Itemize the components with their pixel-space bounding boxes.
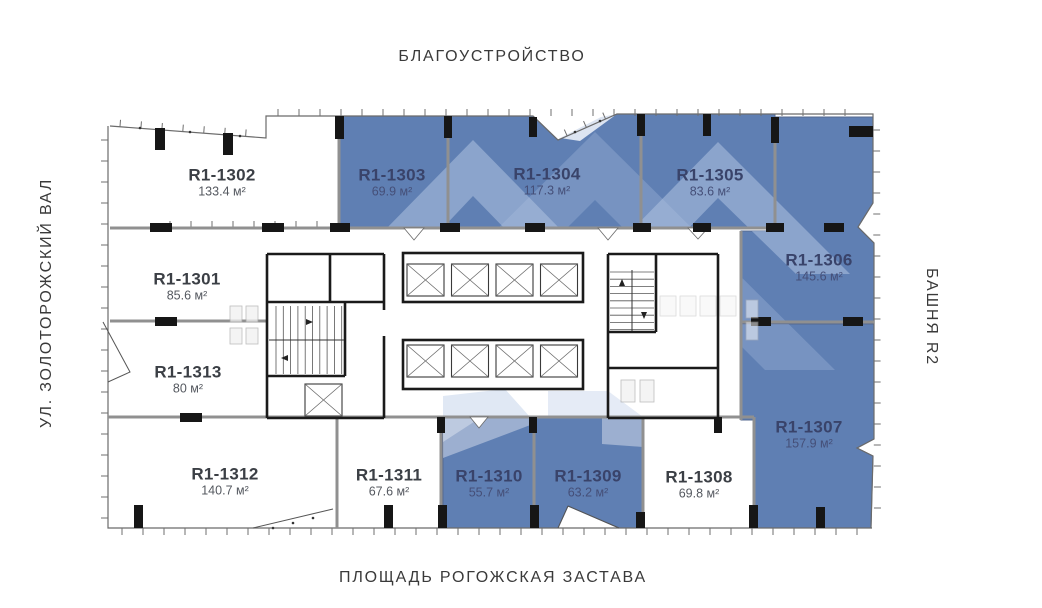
unit-id: R1-1311 [356,465,422,484]
unit-label-r1-1310[interactable]: R1-1310 55.7 м² [455,466,522,499]
unit-id: R1-1304 [513,164,580,183]
floorplan-canvas: R1-1301 85.6 м² R1-1302 133.4 м² R1-1303… [0,0,1042,608]
unit-id: R1-1312 [191,464,258,483]
label-zolotorozhsky-val: УЛ. ЗОЛОТОРОЖСКИЙ ВАЛ [38,178,56,428]
unit-area: 145.6 м² [785,270,852,284]
unit-area: 63.2 м² [554,486,621,500]
unit-area: 83.6 м² [676,185,743,199]
unit-label-r1-1304[interactable]: R1-1304 117.3 м² [513,164,580,197]
unit-label-r1-1302[interactable]: R1-1302 133.4 м² [188,165,255,198]
unit-id: R1-1307 [775,417,842,436]
unit-area: 80 м² [154,382,221,396]
unit-area: 117.3 м² [513,184,580,198]
unit-area: 157.9 м² [775,437,842,451]
unit-id: R1-1310 [455,466,522,485]
unit-area: 133.4 м² [188,185,255,199]
label-tower-r2: БАШНЯ R2 [922,268,940,366]
label-rogozhskaya-square: ПЛОЩАДЬ РОГОЖСКАЯ ЗАСТАВА [339,569,647,587]
unit-area: 85.6 м² [153,289,220,303]
unit-label-r1-1301[interactable]: R1-1301 85.6 м² [153,269,220,302]
unit-id: R1-1301 [153,269,220,288]
unit-id: R1-1302 [188,165,255,184]
unit-id: R1-1306 [785,250,852,269]
unit-area: 55.7 м² [455,486,522,500]
unit-label-r1-1308[interactable]: R1-1308 69.8 м² [665,467,732,500]
unit-area: 69.8 м² [665,487,732,501]
unit-label-r1-1307[interactable]: R1-1307 157.9 м² [775,417,842,450]
unit-id: R1-1313 [154,362,221,381]
unit-label-r1-1306[interactable]: R1-1306 145.6 м² [785,250,852,283]
unit-label-r1-1309[interactable]: R1-1309 63.2 м² [554,466,621,499]
unit-id: R1-1308 [665,467,732,486]
unit-area: 67.6 м² [356,485,422,499]
unit-id: R1-1309 [554,466,621,485]
unit-label-r1-1303[interactable]: R1-1303 69.9 м² [358,165,425,198]
floorplan-svg [0,0,1042,608]
unit-area: 69.9 м² [358,185,425,199]
label-landscaping: БЛАГОУСТРОЙСТВО [398,48,585,66]
unit-label-r1-1305[interactable]: R1-1305 83.6 м² [676,165,743,198]
unit-label-r1-1313[interactable]: R1-1313 80 м² [154,362,221,395]
unit-area: 140.7 м² [191,484,258,498]
unit-id: R1-1305 [676,165,743,184]
unit-label-r1-1311[interactable]: R1-1311 67.6 м² [356,465,422,498]
unit-label-r1-1312[interactable]: R1-1312 140.7 м² [191,464,258,497]
unit-id: R1-1303 [358,165,425,184]
